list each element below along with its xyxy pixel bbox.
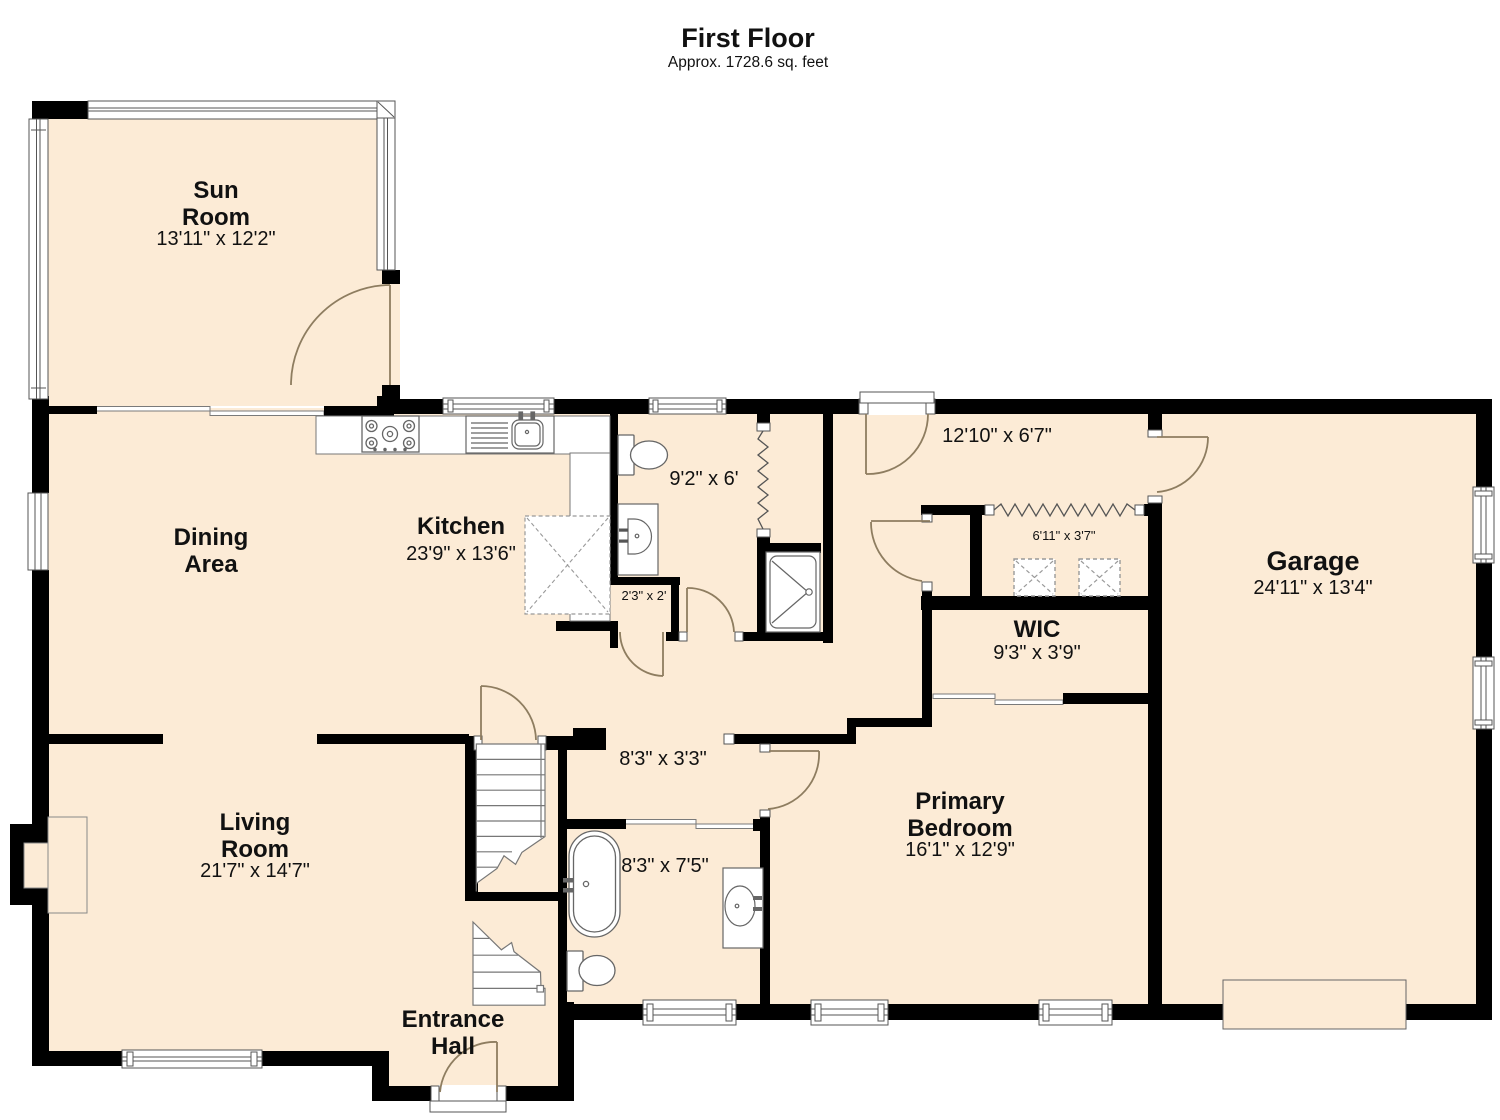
svg-text:21'7" x 14'7": 21'7" x 14'7" [200, 860, 310, 882]
svg-text:First Floor: First Floor [681, 23, 815, 53]
svg-text:Room: Room [221, 836, 289, 863]
svg-text:8'3" x 3'3": 8'3" x 3'3" [619, 748, 706, 770]
svg-text:23'9" x 13'6": 23'9" x 13'6" [406, 543, 516, 565]
svg-text:6'11" x 3'7": 6'11" x 3'7" [1032, 528, 1095, 543]
svg-text:24'11" x 13'4": 24'11" x 13'4" [1253, 577, 1372, 599]
svg-text:Entrance: Entrance [402, 1006, 505, 1033]
svg-text:16'1" x 12'9": 16'1" x 12'9" [905, 839, 1015, 861]
svg-text:WIC: WIC [1014, 616, 1061, 643]
svg-text:9'3" x 3'9": 9'3" x 3'9" [993, 642, 1080, 664]
svg-text:Sun: Sun [193, 177, 238, 204]
svg-text:Living: Living [220, 809, 291, 836]
svg-text:Approx. 1728.6 sq. feet: Approx. 1728.6 sq. feet [668, 54, 829, 71]
svg-text:12'10" x 6'7": 12'10" x 6'7" [942, 425, 1052, 447]
svg-text:Hall: Hall [431, 1033, 475, 1060]
svg-text:Bedroom: Bedroom [907, 815, 1012, 842]
svg-text:Primary: Primary [915, 788, 1005, 815]
svg-text:Garage: Garage [1266, 546, 1359, 576]
svg-text:Room: Room [182, 204, 250, 231]
svg-text:8'3" x 7'5": 8'3" x 7'5" [621, 855, 708, 877]
svg-text:13'11" x 12'2": 13'11" x 12'2" [156, 228, 275, 250]
svg-text:2'3" x 2': 2'3" x 2' [622, 588, 667, 603]
svg-text:Dining: Dining [174, 524, 249, 551]
svg-text:Area: Area [184, 551, 238, 578]
svg-text:Kitchen: Kitchen [417, 513, 505, 540]
svg-text:9'2" x 6': 9'2" x 6' [669, 468, 738, 490]
